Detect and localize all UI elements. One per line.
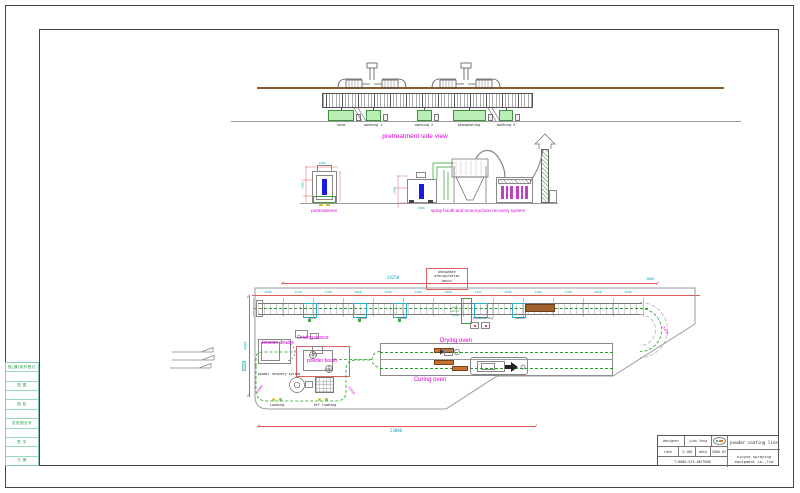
designer-label-cell: designer <box>658 436 685 447</box>
drying-oven-label: Drying oven <box>440 338 472 344</box>
green-duct-lines <box>433 163 454 200</box>
margin-block-row <box>6 409 38 418</box>
left-margin-block: 借(通)用件登记描 图描 校旧底图总号签 字日 期 <box>5 362 39 466</box>
phone-cell: T:0086-523-8879566 <box>658 457 728 467</box>
side-view-caption: pretreatment side view <box>382 134 447 141</box>
bottom-dim: 23000 <box>390 429 402 433</box>
margin-block-row: 日 期 <box>6 456 38 465</box>
plan-equipment-detail <box>286 343 525 393</box>
hot-water-label-line: tank <box>451 314 458 317</box>
tension-device-label: tension device <box>262 341 294 346</box>
rate-label-cell: rate <box>658 447 679 457</box>
cyclone-assembly <box>452 134 555 203</box>
off-loading-label: Off loading <box>314 404 336 407</box>
pretreatment-caption: pretreatment <box>311 209 337 214</box>
section-dim-lines <box>302 166 408 208</box>
company-line2: equipment co.,ltd <box>735 459 774 464</box>
curing-oven-label: Curing oven <box>414 377 446 383</box>
right-dim: 1000 <box>646 278 654 281</box>
drawing-sheet: pretreatment side view pretreatment spra… <box>0 0 800 493</box>
left-dim: 4500 <box>244 342 247 350</box>
linework-layer <box>0 0 800 493</box>
date-value-cell: 2006.07 <box>711 447 728 457</box>
flow-arrow-icon <box>440 349 444 355</box>
powder-booth-label: powder booth <box>307 359 337 364</box>
building-outline <box>255 288 695 409</box>
driving-device-label: Driving device <box>297 336 328 341</box>
up-arrow-icon <box>535 134 555 149</box>
date-label-cell: date <box>696 447 711 457</box>
margin-block-row <box>6 428 38 437</box>
margin-block-row: 借(通)用件登记 <box>6 363 38 371</box>
logo-cell <box>712 436 728 447</box>
basin-label-line: basin <box>442 280 452 283</box>
access-ladders <box>354 108 500 121</box>
company-logo <box>713 437 726 445</box>
basin-label-line: phosphate <box>438 271 455 274</box>
powder-recovery-label: powder recovery system <box>258 373 300 376</box>
project-cell: powder coating line <box>728 436 780 450</box>
margin-block-row: 描 校 <box>6 399 38 408</box>
rate-value-cell: 1:100 <box>679 447 696 457</box>
roof-fan-left <box>338 63 406 88</box>
loading-label: Loading <box>270 404 284 407</box>
burner-arrow-icon <box>505 362 518 372</box>
margin-block-row: 描 图 <box>6 381 38 390</box>
roof-fan-right <box>432 63 500 88</box>
company-cell: xinyue spraying equipment co.,ltd <box>728 450 780 467</box>
margin-block-row <box>6 446 38 455</box>
margin-block-row: 旧底图总号 <box>6 418 38 427</box>
total-top-dim: 24250 <box>387 276 399 280</box>
margin-block-row <box>6 390 38 399</box>
conveyor-guides <box>640 303 667 358</box>
spray-system-caption: spray booth and monocyclone recovery sys… <box>431 209 525 214</box>
margin-block-row <box>6 371 38 380</box>
title-block: designer jian feng rate 1:100 date 2006.… <box>657 435 779 466</box>
designer-value-cell: jian feng <box>685 436 712 447</box>
direction-flags <box>170 348 214 369</box>
dim-end-ticks <box>247 282 659 428</box>
margin-block-row: 签 字 <box>6 437 38 446</box>
basin-label-line: precipitation <box>435 275 460 278</box>
